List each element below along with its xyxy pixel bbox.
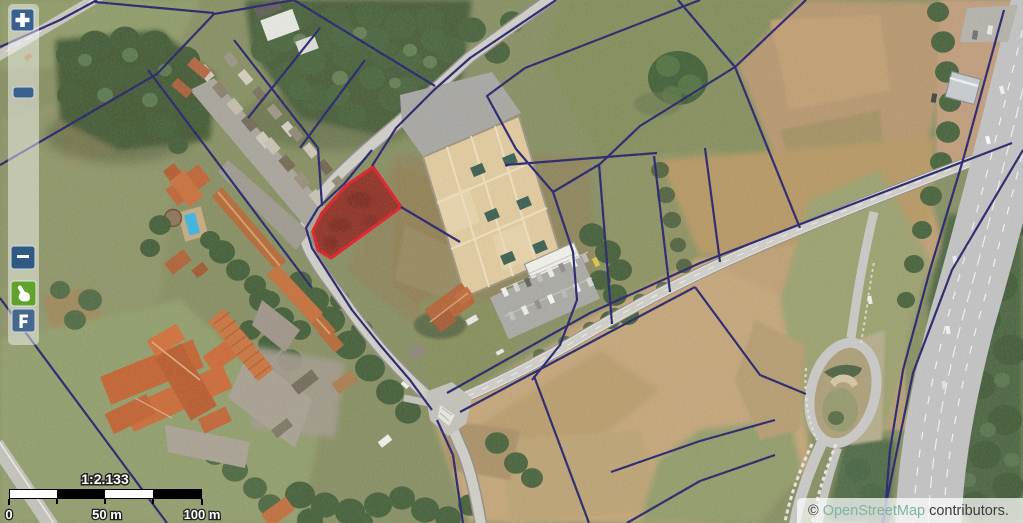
svg-text:1:2.133: 1:2.133	[81, 471, 129, 487]
svg-text:50 m: 50 m	[92, 507, 122, 522]
svg-text:100 m: 100 m	[184, 507, 221, 522]
svg-text:© OpenStreetMap contributors.: © OpenStreetMap contributors.	[808, 503, 1009, 519]
svg-text:0: 0	[5, 507, 12, 522]
